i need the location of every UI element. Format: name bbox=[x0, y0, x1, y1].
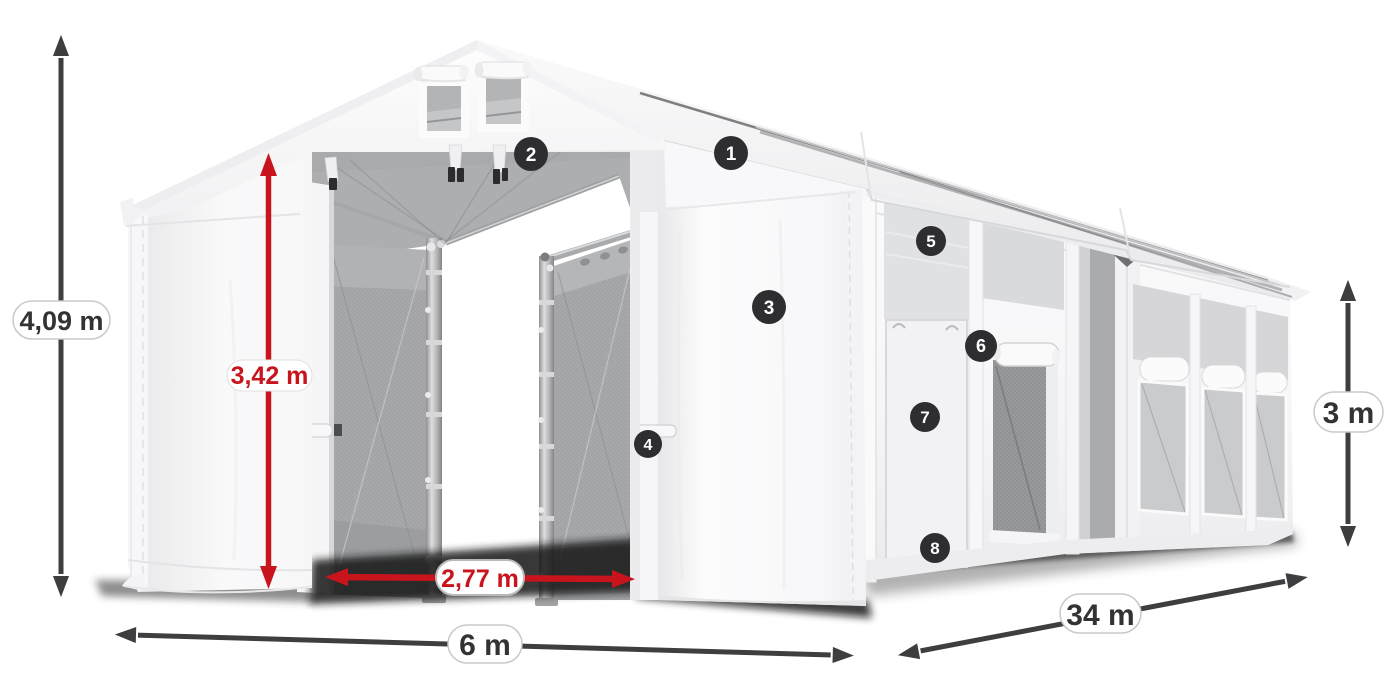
svg-text:2: 2 bbox=[526, 145, 537, 166]
svg-text:8: 8 bbox=[930, 539, 939, 558]
svg-text:6: 6 bbox=[976, 336, 986, 356]
svg-text:4,09 m: 4,09 m bbox=[19, 306, 103, 336]
svg-text:5: 5 bbox=[926, 232, 935, 251]
svg-text:6 m: 6 m bbox=[459, 629, 511, 662]
svg-text:3 m: 3 m bbox=[1323, 397, 1375, 430]
svg-text:4: 4 bbox=[644, 437, 653, 454]
svg-text:3,42 m: 3,42 m bbox=[231, 362, 309, 390]
svg-text:34 m: 34 m bbox=[1066, 599, 1134, 632]
svg-text:1: 1 bbox=[726, 144, 737, 165]
svg-text:7: 7 bbox=[920, 408, 929, 427]
svg-text:2,77 m: 2,77 m bbox=[441, 565, 519, 593]
svg-text:3: 3 bbox=[764, 298, 775, 319]
